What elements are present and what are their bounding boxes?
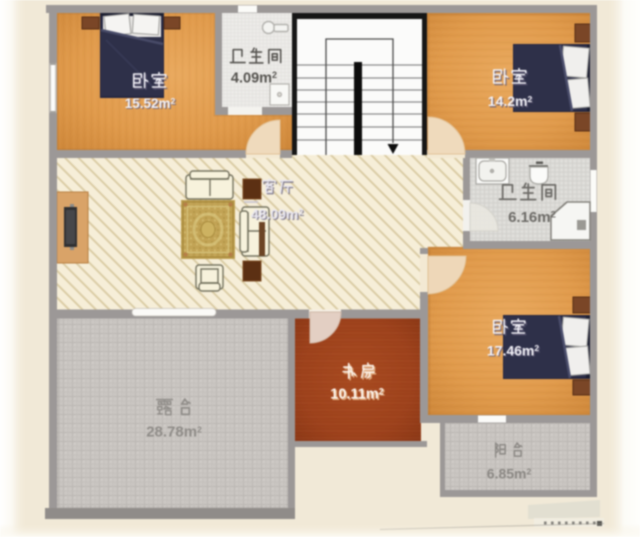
svg-text:48.09m2: 48.09m2 <box>251 206 303 222</box>
svg-text:14.2m2: 14.2m2 <box>488 93 533 109</box>
svg-text:28.78m2: 28.78m2 <box>146 424 202 441</box>
svg-text:6.16m2: 6.16m2 <box>508 209 556 226</box>
svg-text:17.46m2: 17.46m2 <box>487 342 539 358</box>
svg-text:6.85m2: 6.85m2 <box>487 466 532 482</box>
svg-text:10.11m2: 10.11m2 <box>330 386 383 402</box>
svg-text:4.09m2: 4.09m2 <box>231 70 277 86</box>
svg-text:15.52m2: 15.52m2 <box>125 96 176 111</box>
